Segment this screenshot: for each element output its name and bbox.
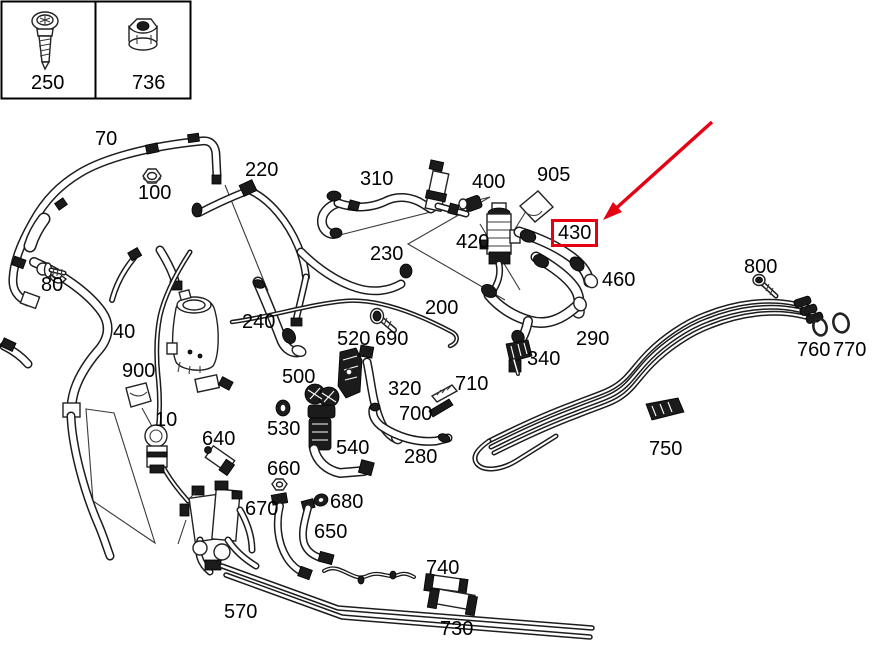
part-label-750: 750 (649, 439, 682, 459)
part-label-430: 430 (551, 219, 598, 247)
part-label-400: 400 (472, 172, 505, 192)
part-label-570: 570 (224, 602, 257, 622)
part-label-420: 420 (456, 232, 489, 252)
part-label-250: 250 (31, 73, 64, 93)
part-label-700: 700 (399, 404, 432, 424)
part-label-660: 660 (267, 459, 300, 479)
part-label-760: 760 (797, 340, 830, 360)
part-label-460: 460 (602, 270, 635, 290)
part-label-230: 230 (370, 244, 403, 264)
part-label-80: 80 (41, 275, 63, 295)
parts-diagram: 2507367010022031040090542043046023080200… (0, 0, 872, 651)
part-label-650: 650 (314, 522, 347, 542)
part-label-240: 240 (242, 312, 275, 332)
part-label-670: 670 (245, 499, 278, 519)
part-label-10: 10 (155, 410, 177, 430)
part-label-540: 540 (336, 438, 369, 458)
part-label-900: 900 (122, 361, 155, 381)
part-label-640: 640 (202, 429, 235, 449)
part-label-520: 520 (337, 329, 370, 349)
part-label-290: 290 (576, 329, 609, 349)
part-labels-layer: 2507367010022031040090542043046023080200… (0, 0, 872, 651)
part-label-320: 320 (388, 379, 421, 399)
part-label-710: 710 (455, 374, 488, 394)
part-label-500: 500 (282, 367, 315, 387)
part-label-800: 800 (744, 257, 777, 277)
part-label-730: 730 (440, 619, 473, 639)
part-label-770: 770 (833, 340, 866, 360)
part-label-905: 905 (537, 165, 570, 185)
part-label-530: 530 (267, 419, 300, 439)
part-label-736: 736 (132, 73, 165, 93)
part-label-310: 310 (360, 169, 393, 189)
part-label-40: 40 (113, 322, 135, 342)
part-label-340: 340 (527, 349, 560, 369)
part-label-690: 690 (375, 329, 408, 349)
part-label-680: 680 (330, 492, 363, 512)
part-label-220: 220 (245, 160, 278, 180)
part-label-280: 280 (404, 447, 437, 467)
part-label-100: 100 (138, 183, 171, 203)
part-label-740: 740 (426, 558, 459, 578)
part-label-200: 200 (425, 298, 458, 318)
part-label-70: 70 (95, 129, 117, 149)
